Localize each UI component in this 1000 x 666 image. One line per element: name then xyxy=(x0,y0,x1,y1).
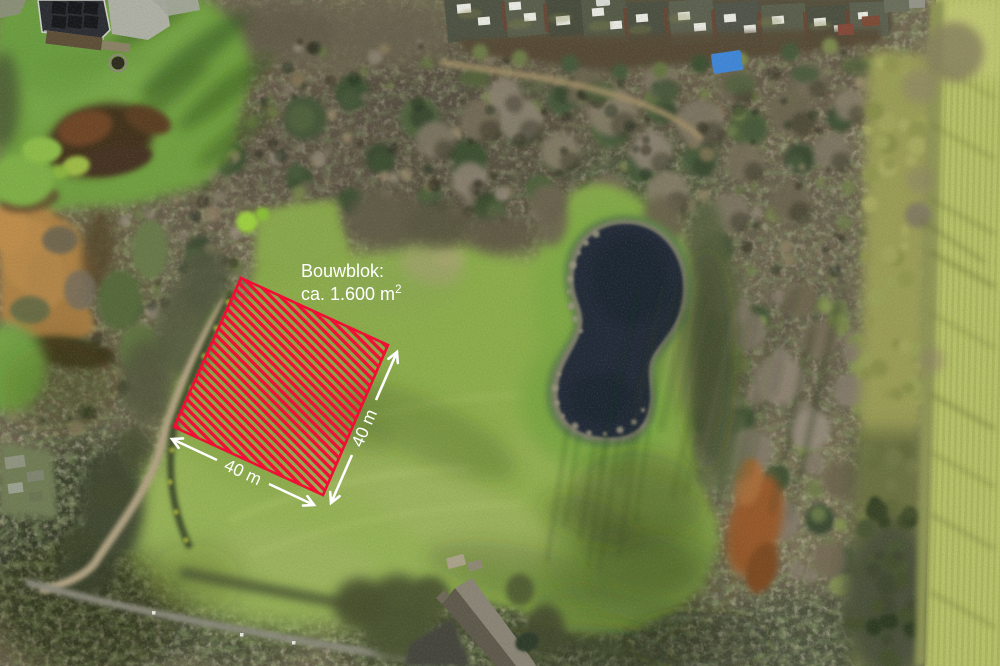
svg-text:ca. 1.600 m2: ca. 1.600 m2 xyxy=(301,284,401,304)
svg-text:Bouwblok:: Bouwblok: xyxy=(301,261,384,281)
